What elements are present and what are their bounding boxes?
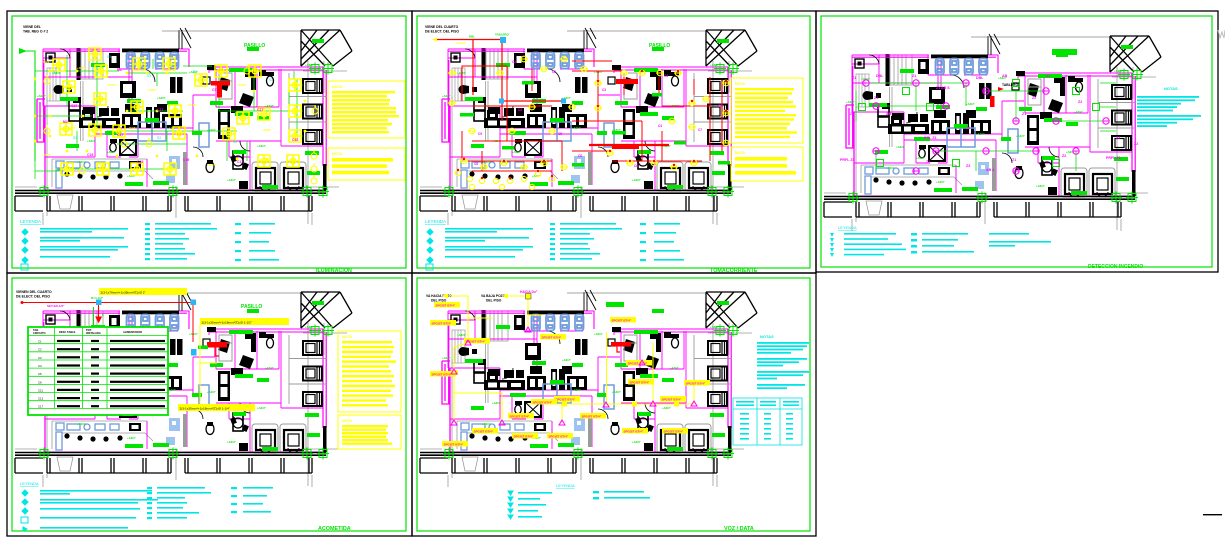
svg-text:DBL: DBL <box>469 35 475 39</box>
svg-text:+O3/4": +O3/4" <box>147 88 157 92</box>
svg-text:C17: C17 <box>117 133 123 137</box>
svg-text:C1: C1 <box>458 74 462 78</box>
svg-text:M2: M2 <box>63 120 68 124</box>
svg-text:C11: C11 <box>38 388 43 392</box>
svg-text:C1: C1 <box>38 340 42 344</box>
svg-text:Z1: Z1 <box>1012 158 1016 162</box>
svg-text:SPGIST BT/4": SPGIST BT/4" <box>474 429 494 433</box>
svg-text:SPGIST BT/4": SPGIST BT/4" <box>514 434 534 438</box>
svg-text:AB 4: AB 4 <box>986 168 994 172</box>
svg-text:LEYENDA: LEYENDA <box>20 481 39 486</box>
svg-text:SPGIST BT/4": SPGIST BT/4" <box>436 303 456 307</box>
svg-text:SPGIST BT/4": SPGIST BT/4" <box>556 397 576 401</box>
svg-text:+O3/4": +O3/4" <box>97 163 107 167</box>
svg-text:SPGIST BT/4": SPGIST BT/4" <box>533 400 553 404</box>
svg-text:NOTA: NOTA <box>332 152 342 156</box>
svg-text:C6: C6 <box>578 154 582 158</box>
svg-text:AB: AB <box>1002 74 1008 78</box>
svg-text:DE ELECT. DEL PISO: DE ELECT. DEL PISO <box>16 295 50 299</box>
svg-text:4-8,3/4": 4-8,3/4" <box>456 41 467 45</box>
svg-text:NOTA: NOTA <box>735 151 745 155</box>
svg-text:b: b <box>102 313 104 317</box>
svg-text:Z1 AB S: Z1 AB S <box>936 86 950 90</box>
svg-text:SPGIST BT/4": SPGIST BT/4" <box>662 397 682 401</box>
svg-text:LEYENDA: LEYENDA <box>838 225 857 230</box>
svg-text:DEL PISO: DEL PISO <box>431 299 447 303</box>
svg-text:+O3/4": +O3/4" <box>127 126 137 130</box>
svg-text:LEYENDA: LEYENDA <box>556 483 575 488</box>
svg-text:S3: S3 <box>107 55 111 59</box>
svg-text:PRFL Z3: PRFL Z3 <box>1106 156 1121 160</box>
svg-text:SPGIST BT/4": SPGIST BT/4" <box>542 335 562 339</box>
svg-text:Z1: Z1 <box>966 126 970 130</box>
svg-text:2(3-1x35mm²+1x16mm²(T)) Ø 1-1/: 2(3-1x35mm²+1x16mm²(T)) Ø 1-1/4" <box>180 406 230 410</box>
svg-text:DETECCION INCENDIO: DETECCION INCENDIO <box>1088 264 1143 270</box>
svg-text:SPGIST BT/4": SPGIST BT/4" <box>624 429 644 433</box>
svg-text:+O3/4": +O3/4" <box>107 83 117 87</box>
svg-text:SPGIST BT/4": SPGIST BT/4" <box>432 321 452 325</box>
svg-text:DESC TABLE: DESC TABLE <box>59 330 76 334</box>
svg-text:Z3: Z3 <box>966 164 970 168</box>
svg-text:PASILLO: PASILLO <box>244 43 265 49</box>
svg-text:C5: C5 <box>38 372 42 376</box>
svg-text:TABLERO: TABLERO <box>1002 83 1018 87</box>
svg-text:Z1: Z1 <box>912 74 916 78</box>
svg-text:CIRCUITO: CIRCUITO <box>33 331 46 335</box>
svg-text:+O3/4": +O3/4" <box>77 66 87 70</box>
svg-text:M1: M1 <box>117 68 122 72</box>
svg-text:+O3/4": +O3/4" <box>41 60 51 64</box>
svg-text:NOTA: NOTA <box>342 419 352 423</box>
svg-text:C12: C12 <box>38 397 44 401</box>
svg-text:C5: C5 <box>478 132 482 136</box>
svg-text:VIENE DEL CUARTO: VIENE DEL CUARTO <box>425 25 459 29</box>
svg-text:Z1: Z1 <box>850 112 854 116</box>
svg-text:Z2: Z2 <box>1078 100 1082 104</box>
svg-text:DE ELECT. DEL PISO: DE ELECT. DEL PISO <box>425 30 459 34</box>
svg-text:Z2: Z2 <box>1032 96 1036 100</box>
svg-text:SPGIST BT/4": SPGIST BT/4" <box>664 429 684 433</box>
svg-text:+O3/4": +O3/4" <box>42 153 52 157</box>
svg-text:C19: C19 <box>183 158 189 162</box>
svg-text:C6: C6 <box>634 164 638 168</box>
svg-text:C7: C7 <box>718 104 722 108</box>
svg-text:VIENE DEL: VIENE DEL <box>23 25 41 29</box>
svg-text:C17: C17 <box>71 104 77 108</box>
svg-text:S3: S3 <box>269 78 273 82</box>
svg-text:SPGIST BT/4": SPGIST BT/4" <box>630 380 650 384</box>
svg-text:NOTA: NOTA <box>735 82 745 86</box>
svg-text:S3: S3 <box>53 70 57 74</box>
svg-text:INSTALADA: INSTALADA <box>86 331 101 335</box>
svg-text:PRFL Z3: PRFL Z3 <box>840 158 855 162</box>
svg-text:PASILLO: PASILLO <box>241 304 262 310</box>
svg-text:C17: C17 <box>38 405 44 409</box>
svg-text:DEL PISO: DEL PISO <box>486 299 502 303</box>
svg-text:+O3/4": +O3/4" <box>207 163 217 167</box>
svg-text:C18: C18 <box>292 138 298 142</box>
svg-text:Z2: Z2 <box>1134 142 1138 146</box>
svg-text:NOTA: NOTA <box>342 335 352 339</box>
svg-text:AB: AB <box>886 112 892 116</box>
svg-text:SPGIST BT/4": SPGIST BT/4" <box>444 442 464 446</box>
svg-text:SPGIST BT/4": SPGIST BT/4" <box>510 414 530 418</box>
svg-text:Ø=1-1/2": Ø=1-1/2" <box>91 296 104 300</box>
svg-text:NOTA: NOTA <box>332 85 342 89</box>
svg-text:+O3/4": +O3/4" <box>262 128 272 132</box>
svg-text:NOTAS: NOTAS <box>1164 86 1178 91</box>
svg-text:C17: C17 <box>157 108 163 112</box>
svg-text:C2: C2 <box>38 348 42 352</box>
svg-text:C2: C2 <box>518 108 522 112</box>
svg-text:ACOMETIDA: ACOMETIDA <box>318 526 351 532</box>
svg-text:VA BAJA POZO: VA BAJA POZO <box>481 294 506 298</box>
svg-text:SPGIST BT/4": SPGIST BT/4" <box>549 434 569 438</box>
svg-text:ALIMENTADOR: ALIMENTADOR <box>123 330 142 334</box>
svg-text:Z1: Z1 <box>874 96 878 100</box>
svg-text:Z1: Z1 <box>1022 112 1026 116</box>
svg-text:S3: S3 <box>73 136 77 140</box>
svg-text:C8: C8 <box>474 162 478 166</box>
svg-text:C4: C4 <box>38 364 42 368</box>
svg-text:SPGIST BT/4": SPGIST BT/4" <box>582 414 602 418</box>
svg-text:C4: C4 <box>664 74 668 78</box>
svg-text:C2: C2 <box>552 70 556 74</box>
svg-text:BRL Z1: BRL Z1 <box>924 136 937 140</box>
svg-text:SET-ER-1/2": SET-ER-1/2" <box>47 304 65 308</box>
svg-text:Z2: Z2 <box>1116 136 1120 140</box>
svg-text:DBL: DBL <box>876 74 884 78</box>
svg-text:C5: C5 <box>558 132 562 136</box>
svg-text:SPGIST BT/4": SPGIST BT/4" <box>612 318 632 322</box>
svg-text:TABLERO: TABLERO <box>495 33 510 37</box>
svg-text:SPGIST BT/4": SPGIST BT/4" <box>686 381 706 385</box>
svg-text:C17: C17 <box>237 160 243 164</box>
svg-text:S3: S3 <box>157 136 161 140</box>
svg-text:C19: C19 <box>87 153 93 157</box>
svg-text:C4: C4 <box>658 124 662 128</box>
svg-text:C3: C3 <box>38 356 42 360</box>
svg-text:+O3/4": +O3/4" <box>67 126 77 130</box>
svg-text:2(3-1x35mm²+1x16mm²(T)) Ø 1-1/: 2(3-1x35mm²+1x16mm²(T)) Ø 1-1/2" <box>202 320 252 324</box>
svg-text:Z2: Z2 <box>1062 154 1066 158</box>
svg-text:+O3/4": +O3/4" <box>237 83 247 87</box>
svg-text:TAB. REG O # 2: TAB. REG O # 2 <box>23 30 48 34</box>
svg-text:C6: C6 <box>38 380 42 384</box>
svg-text:C17: C17 <box>257 108 263 112</box>
svg-text:S3: S3 <box>147 74 151 78</box>
svg-text:Z1: Z1 <box>1046 74 1050 78</box>
svg-text:C3: C3 <box>602 88 606 92</box>
svg-text:C2: C2 <box>512 60 516 64</box>
svg-text:DBL: DBL <box>976 76 984 80</box>
svg-text:Z1: Z1 <box>852 76 856 80</box>
svg-text:C19: C19 <box>137 160 143 164</box>
svg-text:S3: S3 <box>193 70 197 74</box>
svg-text:VOZ / DATA: VOZ / DATA <box>724 526 754 532</box>
svg-text:+O3/4": +O3/4" <box>187 103 197 107</box>
svg-text:Z3: Z3 <box>926 160 930 164</box>
svg-text:PASILLO: PASILLO <box>649 43 670 49</box>
svg-text:2(3-1x70mm²+1x35mm²(T)) Ø 2": 2(3-1x70mm²+1x35mm²(T)) Ø 2" <box>101 290 146 294</box>
svg-text:S3: S3 <box>233 140 237 144</box>
svg-text:VIENEN DEL CUARTO: VIENEN DEL CUARTO <box>16 290 52 294</box>
svg-text:SPGIST BT/4": SPGIST BT/4" <box>432 372 452 376</box>
svg-text:C7: C7 <box>698 128 702 132</box>
svg-text:NOTAS: NOTAS <box>760 334 774 339</box>
